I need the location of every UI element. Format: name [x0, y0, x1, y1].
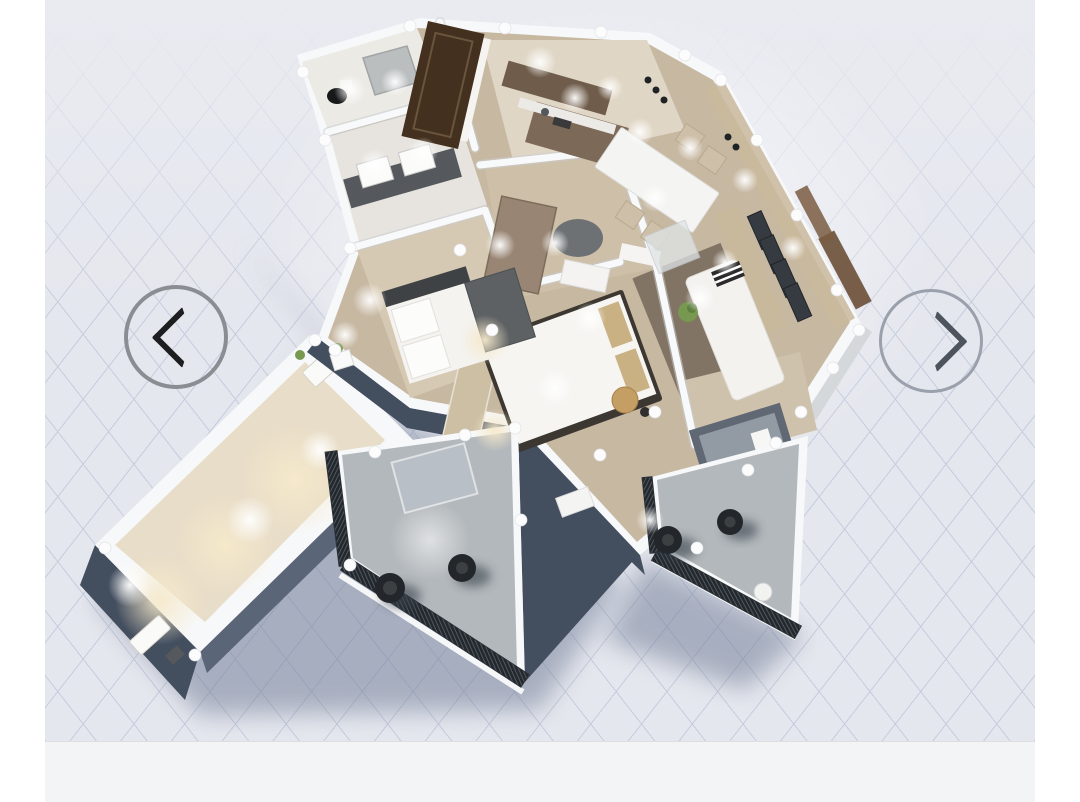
side-table	[612, 387, 638, 413]
chevron-left-icon	[151, 307, 212, 368]
page-margin-right	[1035, 0, 1080, 802]
carousel-next-button[interactable]	[879, 289, 983, 393]
carousel-prev-button[interactable]	[124, 285, 228, 389]
floorplan-viewport	[45, 0, 1035, 741]
floorplan-viewer-page	[0, 0, 1080, 802]
page-margin-left	[0, 0, 45, 802]
chevron-right-icon	[906, 311, 967, 372]
next-section-strip	[45, 741, 1035, 802]
